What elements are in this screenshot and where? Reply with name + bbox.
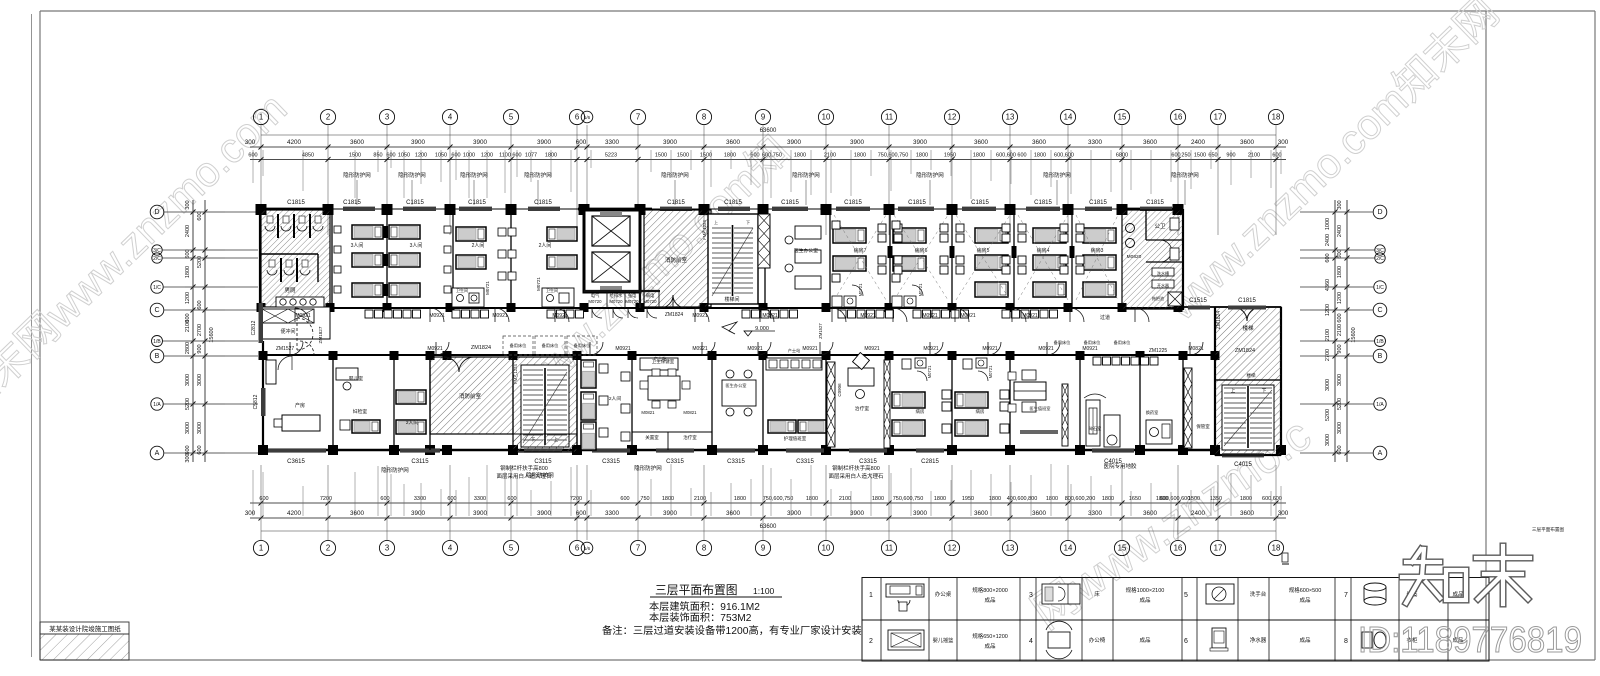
svg-text:M0720: M0720 [625, 299, 639, 304]
svg-text:M0721: M0721 [536, 277, 541, 291]
svg-text:300: 300 [1278, 510, 1289, 517]
svg-text:8: 8 [702, 113, 706, 122]
svg-text:600: 600 [1171, 153, 1180, 159]
svg-text:某某装设计院竣施工图纸: 某某装设计院竣施工图纸 [49, 624, 121, 633]
svg-text:C1515: C1515 [1189, 298, 1207, 304]
svg-text:C1815: C1815 [971, 200, 989, 206]
svg-text:3人间: 3人间 [351, 242, 364, 249]
svg-text:2: 2 [326, 113, 330, 122]
svg-text:面层采用白人造大理石: 面层采用白人造大理石 [496, 472, 552, 480]
svg-text:ZM1824: ZM1824 [1216, 311, 1222, 330]
svg-text:1: 1 [259, 544, 263, 553]
svg-text:7200: 7200 [570, 496, 582, 502]
svg-text:M0720: M0720 [643, 299, 657, 304]
svg-text:1800: 1800 [185, 266, 191, 278]
svg-text:病房: 病房 [976, 408, 985, 415]
svg-text:FM乙1224: FM乙1224 [701, 220, 707, 240]
svg-text:1950: 1950 [962, 496, 974, 502]
svg-text:D: D [154, 209, 159, 216]
svg-text:ZM1824: ZM1824 [1235, 348, 1255, 354]
svg-text:2100: 2100 [1325, 329, 1331, 341]
svg-text:1800: 1800 [1046, 496, 1058, 502]
svg-text:2人间: 2人间 [609, 395, 621, 402]
svg-text:11: 11 [885, 544, 893, 553]
svg-text:600: 600 [620, 496, 629, 502]
svg-text:备用床位: 备用床位 [574, 342, 591, 349]
svg-text:750,600,750: 750,600,750 [763, 496, 794, 502]
svg-text:床: 床 [1094, 590, 1100, 598]
svg-text:楼梯: 楼梯 [1247, 372, 1256, 379]
svg-text:下: 下 [746, 220, 750, 225]
svg-text:1: 1 [259, 113, 263, 122]
svg-text:卫生保健室: 卫生保健室 [652, 358, 675, 365]
svg-text:规格650×1200: 规格650×1200 [972, 632, 1008, 640]
svg-text:过道: 过道 [1100, 314, 1110, 321]
svg-text:消防前室: 消防前室 [459, 392, 482, 400]
svg-text:18: 18 [1272, 113, 1281, 122]
svg-text:18: 18 [1272, 544, 1281, 553]
svg-text:4: 4 [1029, 638, 1033, 645]
svg-text:3900: 3900 [473, 139, 488, 146]
svg-text:隐形防护网: 隐形防护网 [661, 171, 689, 179]
svg-text:2人间: 2人间 [472, 242, 485, 249]
svg-text:1/A: 1/A [1376, 402, 1384, 408]
svg-text:隐形防护网: 隐形防护网 [634, 464, 662, 472]
svg-text:M0921: M0921 [1038, 346, 1054, 352]
svg-text:3900: 3900 [473, 510, 488, 517]
svg-text:3600: 3600 [974, 510, 989, 517]
svg-text:医生办公室: 医生办公室 [726, 382, 747, 389]
svg-text:3000: 3000 [197, 422, 203, 434]
svg-text:1200: 1200 [1337, 292, 1343, 304]
svg-text:8: 8 [1344, 638, 1348, 645]
svg-text:3900: 3900 [787, 139, 802, 146]
svg-text:2400: 2400 [1191, 510, 1206, 517]
svg-text:成品: 成品 [1139, 636, 1151, 644]
svg-text:17: 17 [1214, 544, 1223, 553]
svg-text:保管室: 保管室 [1196, 423, 1210, 430]
svg-text:600: 600 [197, 300, 203, 309]
svg-text:2: 2 [869, 638, 873, 645]
svg-text:M0720: M0720 [588, 299, 602, 304]
svg-text:C3315: C3315 [727, 459, 745, 465]
svg-text:成品: 成品 [1139, 596, 1151, 604]
svg-text:C1815: C1815 [287, 200, 305, 206]
svg-text:成品: 成品 [1299, 596, 1311, 604]
svg-text:300: 300 [1337, 200, 1343, 209]
svg-text:妇检室: 妇检室 [353, 408, 368, 415]
svg-text:强电: 强电 [628, 292, 637, 299]
svg-text:16: 16 [1174, 113, 1183, 122]
svg-text:C1815: C1815 [1146, 200, 1164, 206]
svg-text:750,600,750: 750,600,750 [893, 496, 924, 502]
svg-text:B: B [155, 353, 160, 360]
svg-text:M0721: M0721 [927, 365, 932, 378]
svg-text:隐形防护网: 隐形防护网 [792, 171, 820, 179]
svg-text:FM乙1224: FM乙1224 [512, 364, 518, 384]
svg-text:洗手台: 洗手台 [1250, 590, 1267, 598]
svg-text:隐形防护网: 隐形防护网 [460, 171, 488, 179]
svg-text:M0921: M0921 [1082, 346, 1098, 352]
svg-text:12: 12 [948, 544, 957, 553]
svg-text:3600: 3600 [1143, 139, 1158, 146]
svg-text:9: 9 [761, 544, 765, 553]
svg-text:600: 600 [1272, 153, 1281, 159]
svg-text:C3315: C3315 [796, 459, 814, 465]
svg-text:900: 900 [1337, 344, 1343, 353]
svg-text:3900: 3900 [850, 510, 865, 517]
svg-text:600: 600 [380, 496, 389, 502]
svg-text:2100: 2100 [694, 496, 706, 502]
svg-text:1800: 1800 [1102, 496, 1114, 502]
svg-text:3300: 3300 [605, 139, 620, 146]
svg-text:12: 12 [948, 113, 957, 122]
svg-text:2400: 2400 [1325, 234, 1331, 246]
svg-text:4200: 4200 [287, 510, 302, 517]
svg-text:楼梯间: 楼梯间 [724, 296, 739, 303]
svg-text:3600: 3600 [1143, 510, 1158, 517]
svg-text:C: C [154, 307, 159, 314]
svg-text:3900: 3900 [663, 510, 678, 517]
svg-text:C1815: C1815 [908, 200, 926, 206]
svg-text:治疗室: 治疗室 [855, 405, 870, 412]
svg-text:隐形防护网: 隐形防护网 [524, 171, 552, 179]
svg-text:ZM1824: ZM1824 [665, 312, 684, 318]
svg-text:3000: 3000 [197, 374, 203, 386]
svg-text:1800: 1800 [934, 496, 946, 502]
svg-text:6: 6 [575, 544, 579, 553]
svg-text:3人间: 3人间 [410, 242, 423, 249]
svg-text:C5812: C5812 [253, 394, 259, 409]
svg-text:1/A: 1/A [153, 402, 161, 408]
svg-text:备用床位: 备用床位 [1084, 339, 1101, 346]
svg-text:B: B [1378, 353, 1383, 360]
svg-text:11: 11 [885, 113, 893, 122]
svg-text:1500: 1500 [677, 153, 689, 159]
svg-text:3300: 3300 [1088, 510, 1103, 517]
svg-text:2800: 2800 [185, 342, 191, 354]
svg-text:M0921: M0921 [982, 346, 998, 352]
svg-text:C1815: C1815 [534, 200, 552, 206]
svg-text:1/B: 1/B [153, 339, 161, 345]
svg-text:ZM1527: ZM1527 [818, 323, 823, 339]
svg-text:钢制栏杆扶手高800: 钢制栏杆扶手高800 [832, 464, 880, 472]
svg-text:600,600: 600,600 [1262, 496, 1282, 502]
svg-text:3900: 3900 [850, 139, 865, 146]
svg-text:3: 3 [385, 113, 389, 122]
svg-text:M0921: M0921 [762, 313, 778, 319]
svg-text:300: 300 [185, 453, 191, 462]
svg-text:15600: 15600 [1351, 327, 1357, 342]
svg-text:弱电: 弱电 [646, 292, 655, 299]
svg-text:2700: 2700 [1325, 349, 1331, 361]
svg-text:开水器: 开水器 [1157, 282, 1169, 288]
svg-text:拖把池: 拖把池 [1152, 295, 1164, 301]
svg-text:净水器: 净水器 [1250, 636, 1267, 644]
svg-text:隐形防护网: 隐形防护网 [398, 171, 426, 179]
svg-text:1650: 1650 [1129, 496, 1141, 502]
svg-text:C1815: C1815 [667, 200, 685, 206]
svg-text:4200: 4200 [287, 139, 302, 146]
svg-text:3900: 3900 [537, 510, 552, 517]
svg-text:3300: 3300 [414, 496, 426, 502]
svg-text:规格1000×2100: 规格1000×2100 [1126, 586, 1165, 594]
svg-text:面层采用白人造大理石: 面层采用白人造大理石 [828, 472, 884, 480]
svg-text:600: 600 [1337, 249, 1343, 258]
svg-text:成品: 成品 [1299, 636, 1311, 644]
svg-text:5200: 5200 [197, 256, 203, 268]
svg-text:2400: 2400 [185, 225, 191, 237]
svg-text:650: 650 [1208, 153, 1217, 159]
svg-text:M0821: M0821 [1188, 346, 1204, 352]
svg-text:2100: 2100 [839, 496, 851, 502]
svg-text:楼梯: 楼梯 [1242, 324, 1254, 332]
svg-text:备用床位: 备用床位 [1054, 339, 1071, 346]
svg-text:1800: 1800 [989, 496, 1001, 502]
svg-text:300: 300 [245, 510, 256, 517]
svg-text:3600: 3600 [974, 139, 989, 146]
svg-text:M0921: M0921 [860, 313, 876, 319]
svg-text:1500: 1500 [1188, 496, 1200, 502]
svg-text:M0821: M0821 [683, 410, 697, 415]
svg-text:3900: 3900 [411, 510, 426, 517]
svg-text:M0921: M0921 [923, 346, 939, 352]
svg-text:A: A [155, 450, 160, 457]
svg-text:4: 4 [448, 113, 453, 122]
svg-text:5223: 5223 [605, 153, 617, 159]
svg-text:3: 3 [385, 544, 389, 553]
svg-text:3000: 3000 [1337, 374, 1343, 386]
svg-text:250: 250 [1181, 153, 1190, 159]
svg-text:8: 8 [702, 544, 706, 553]
svg-text:1800: 1800 [794, 153, 806, 159]
svg-text:产士站: 产士站 [788, 347, 801, 354]
svg-text:3: 3 [1029, 592, 1033, 599]
svg-text:300: 300 [245, 139, 256, 146]
svg-text:办公桌: 办公桌 [935, 590, 952, 598]
svg-text:ZM1527: ZM1527 [276, 346, 295, 352]
svg-text:规格800×2000: 规格800×2000 [972, 586, 1008, 594]
svg-text:17: 17 [1214, 113, 1223, 122]
svg-text:600: 600 [197, 211, 203, 220]
svg-text:碎石室: 碎石室 [1089, 425, 1102, 432]
svg-text:600: 600 [185, 249, 191, 258]
svg-text:规格600×500: 规格600×500 [1289, 586, 1322, 594]
svg-text:4: 4 [448, 544, 453, 553]
svg-text:关置室: 关置室 [645, 434, 659, 441]
svg-text:钢制栏杆扶手高800: 钢制栏杆扶手高800 [500, 464, 548, 472]
svg-text:M0820: M0820 [1127, 254, 1142, 260]
svg-text:三层平面布置图: 三层平面布置图 [655, 583, 738, 597]
svg-text:3900: 3900 [913, 510, 928, 517]
svg-text:13: 13 [1006, 113, 1015, 122]
svg-text:C1815: C1815 [406, 200, 424, 206]
svg-text:隐形防护网: 隐形防护网 [1043, 171, 1071, 179]
svg-text:1:100: 1:100 [753, 586, 775, 596]
svg-text:ZM1225: ZM1225 [1149, 348, 1168, 354]
svg-text:C0906: C0906 [837, 383, 842, 397]
svg-text:上: 上 [714, 219, 718, 225]
svg-text:6: 6 [1184, 638, 1188, 645]
svg-text:3600: 3600 [1240, 510, 1255, 517]
svg-text:备用床位: 备用床位 [1114, 339, 1131, 346]
svg-text:A: A [1378, 450, 1383, 457]
svg-text:3000: 3000 [185, 374, 191, 386]
svg-text:给排水: 给排水 [610, 292, 624, 299]
svg-text:10: 10 [822, 544, 831, 553]
svg-text:1800: 1800 [724, 153, 736, 159]
svg-text:M0721: M0721 [858, 283, 863, 296]
svg-text:卫生间: 卫生间 [546, 287, 558, 293]
svg-text:C3315: C3315 [666, 459, 684, 465]
svg-text:600: 600 [576, 510, 587, 517]
svg-text:M0720: M0720 [609, 299, 623, 304]
svg-text:婴儿室: 婴儿室 [349, 375, 364, 382]
svg-text:C1815: C1815 [468, 200, 486, 206]
svg-text:15: 15 [1118, 113, 1127, 122]
svg-text:成品: 成品 [984, 642, 996, 650]
svg-text:2100: 2100 [824, 153, 836, 159]
svg-text:600,600: 600,600 [996, 153, 1016, 159]
svg-text:备注：三层过道安装设备带1200高，有专业厂家设计安装: 备注：三层过道安装设备带1200高，有专业厂家设计安装 [602, 624, 862, 637]
svg-text:5: 5 [509, 544, 514, 553]
svg-text:3000: 3000 [185, 422, 191, 434]
svg-text:M0921: M0921 [615, 346, 631, 352]
svg-text:14: 14 [1064, 544, 1073, 553]
svg-text:1800: 1800 [1034, 153, 1046, 159]
svg-text:3000: 3000 [1325, 379, 1331, 391]
svg-text:C1815: C1815 [724, 200, 742, 206]
svg-text:ID:1189776819: ID:1189776819 [1358, 619, 1582, 660]
svg-text:3300: 3300 [605, 510, 620, 517]
svg-text:3600: 3600 [726, 139, 741, 146]
svg-text:护理值班室: 护理值班室 [784, 435, 807, 442]
svg-text:C3615: C3615 [287, 459, 305, 465]
svg-text:600: 600 [507, 496, 516, 502]
svg-text:M0721: M0721 [988, 365, 993, 378]
svg-text:本层装饰面积：753M2: 本层装饰面积：753M2 [649, 611, 752, 624]
svg-text:C1815: C1815 [1089, 200, 1107, 206]
svg-text:隐形防护网: 隐形防护网 [916, 171, 944, 179]
svg-text:消防前室: 消防前室 [665, 256, 688, 264]
svg-text:1800: 1800 [854, 153, 866, 159]
svg-text:病房: 病房 [916, 408, 925, 415]
svg-text:1/C: 1/C [1376, 285, 1384, 291]
svg-text:电气: 电气 [591, 292, 600, 298]
svg-text:7: 7 [636, 113, 640, 122]
svg-text:300: 300 [1278, 139, 1289, 146]
svg-text:本层建筑面积：916.1M2: 本层建筑面积：916.1M2 [649, 600, 760, 613]
svg-text:2人间: 2人间 [406, 419, 418, 426]
svg-text:16: 16 [1174, 544, 1183, 553]
svg-text:2400: 2400 [1337, 225, 1343, 237]
svg-text:2/C: 2/C [1376, 256, 1384, 262]
svg-text:C3115: C3115 [411, 459, 429, 465]
svg-text:M0921: M0921 [692, 346, 708, 352]
svg-text:洗水槽: 洗水槽 [1157, 270, 1169, 276]
svg-text:7: 7 [636, 544, 640, 553]
svg-text:2400: 2400 [1191, 139, 1206, 146]
svg-text:男厕: 男厕 [284, 287, 296, 294]
svg-text:2100: 2100 [185, 320, 191, 332]
svg-text:C4015: C4015 [1234, 462, 1252, 468]
svg-text:产房: 产房 [295, 402, 305, 409]
svg-text:ZM1824: ZM1824 [471, 345, 491, 351]
svg-text:3600: 3600 [1032, 139, 1047, 146]
svg-text:63600: 63600 [760, 524, 777, 530]
svg-text:D: D [1377, 209, 1382, 216]
svg-text:900: 900 [197, 344, 203, 353]
svg-text:C1815: C1815 [343, 200, 361, 206]
svg-text:1/6: 1/6 [584, 115, 591, 120]
svg-text:M0721: M0721 [918, 283, 923, 296]
svg-text:3000: 3000 [1325, 434, 1331, 446]
svg-text:M0821: M0821 [641, 410, 655, 415]
svg-text:备用床位: 备用床位 [510, 342, 527, 349]
svg-text:750: 750 [640, 496, 649, 502]
svg-text:2100: 2100 [1248, 153, 1260, 159]
svg-text:3900: 3900 [913, 139, 928, 146]
svg-text:2100: 2100 [1337, 324, 1343, 336]
svg-text:1000: 1000 [1325, 218, 1331, 230]
svg-text:13: 13 [1006, 544, 1015, 553]
svg-text:1800: 1800 [1337, 266, 1343, 278]
svg-text:M0921: M0921 [922, 313, 938, 319]
svg-text:3600: 3600 [1032, 510, 1047, 517]
svg-text:3300: 3300 [474, 496, 486, 502]
svg-text:600: 600 [750, 153, 759, 159]
svg-text:7: 7 [1344, 592, 1348, 599]
svg-text:6: 6 [575, 113, 579, 122]
svg-text:C1815: C1815 [781, 200, 799, 206]
svg-text:卫生间: 卫生间 [456, 287, 468, 293]
svg-text:C1815: C1815 [1238, 298, 1256, 304]
svg-text:1500: 1500 [655, 153, 667, 159]
svg-text:病房4: 病房4 [1037, 247, 1050, 254]
svg-text:医生办公室: 医生办公室 [794, 247, 818, 254]
svg-text:M0921: M0921 [747, 346, 763, 352]
svg-text:C1815: C1815 [844, 200, 862, 206]
svg-text:4360: 4360 [1325, 279, 1331, 291]
svg-text:1800: 1800 [916, 153, 928, 159]
svg-text:14: 14 [1064, 113, 1073, 122]
svg-text:5200: 5200 [1325, 409, 1331, 421]
svg-text:C3115: C3115 [534, 459, 552, 465]
svg-text:3600: 3600 [350, 139, 365, 146]
svg-text:成品: 成品 [984, 596, 996, 604]
svg-text:2700: 2700 [197, 324, 203, 336]
svg-text:便冲间: 便冲间 [280, 328, 295, 335]
svg-text:1800: 1800 [806, 496, 818, 502]
svg-text:750,600,750: 750,600,750 [878, 153, 909, 159]
svg-text:6800: 6800 [1116, 153, 1128, 159]
svg-text:5: 5 [509, 113, 514, 122]
svg-text:3900: 3900 [787, 510, 802, 517]
svg-text:M0921: M0921 [427, 346, 443, 352]
svg-text:10: 10 [822, 113, 831, 122]
svg-text:2: 2 [326, 544, 330, 553]
svg-text:C3315: C3315 [602, 459, 620, 465]
svg-text:63600: 63600 [760, 128, 777, 134]
svg-text:2/C: 2/C [153, 256, 161, 262]
svg-text:隐形防护网: 隐形防护网 [343, 171, 371, 179]
svg-text:1800: 1800 [662, 496, 674, 502]
svg-text:300: 300 [185, 200, 191, 209]
svg-text:公卫: 公卫 [1154, 223, 1166, 230]
svg-text:9: 9 [761, 113, 765, 122]
svg-text:15600: 15600 [209, 327, 215, 342]
svg-text:600: 600 [1337, 313, 1343, 322]
